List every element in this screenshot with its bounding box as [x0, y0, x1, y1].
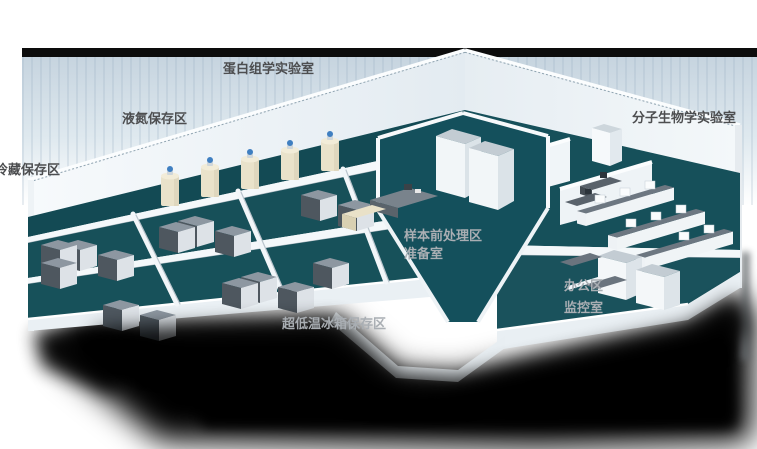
storage-cabinet — [598, 250, 642, 300]
label-liquid-nitrogen-storage: 液氮保存区 — [122, 113, 187, 127]
freezer-unit — [301, 190, 337, 221]
freezer-unit — [159, 222, 195, 253]
label-molecular-biology-lab: 分子生物学实验室 — [632, 112, 736, 126]
freezer-unit — [278, 282, 314, 313]
lab-floorplan-screenshot: 蛋白组学实验室 液氮保存区 冷藏保存区 分子生物学实验室 样本前处理区 准备室 … — [0, 0, 757, 449]
freezer-unit — [98, 250, 134, 281]
label-ult-freezer-storage: 超低温冰箱保存区 — [282, 318, 386, 332]
storage-cabinet — [636, 264, 680, 310]
freezer-unit — [222, 278, 258, 309]
label-monitoring-room: 监控室 — [564, 302, 603, 316]
monitor — [585, 189, 591, 194]
label-office-area: 办公区 — [564, 280, 603, 294]
freezer-unit — [41, 258, 77, 289]
label-cold-storage: 冷藏保存区 — [0, 164, 60, 178]
label-proteomics-lab: 蛋白组学实验室 — [223, 63, 314, 77]
monitor — [600, 172, 607, 178]
floorplan-3d-render — [0, 0, 757, 449]
fridge-unit — [592, 124, 622, 166]
storage-cabinet — [469, 141, 514, 210]
freezer-unit — [215, 226, 251, 257]
label-sample-pretreatment: 样本前处理区 — [404, 230, 482, 244]
label-preparation-room: 准备室 — [404, 248, 443, 262]
freezer-unit — [103, 300, 139, 331]
freezer-unit — [313, 258, 349, 289]
